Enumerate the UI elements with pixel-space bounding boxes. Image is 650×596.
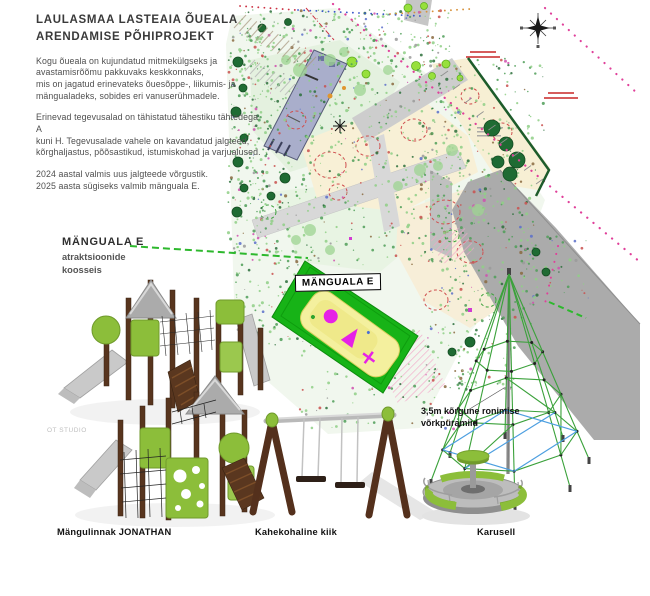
page-title: LAULASMAA LASTEAIA ÕUEALA ARENDAMISE PÕH… — [36, 12, 264, 47]
equipment-label-swing: Kahekohaline kiik — [255, 527, 337, 537]
watermark-text: OT STUDIO — [47, 427, 87, 434]
project-poster: LAULASMAA LASTEAIA ÕUEALA ARENDAMISE PÕH… — [0, 0, 650, 596]
compass-rose-icon — [520, 13, 556, 48]
pyramid-note: 3,5m kõrgune ronimise võrkpüramiid — [421, 406, 520, 429]
equipment-label-carousel: Karusell — [477, 527, 515, 537]
callout-title: MÄNGUALA E — [62, 236, 144, 248]
zones-paragraph: Erinevad tegevusalad on tähistatud tähes… — [36, 112, 264, 159]
timeline-paragraph: 2024 aastal valmis uus jalgteede võrgust… — [36, 169, 264, 192]
callout-subtitle: atraktsioonide koosseis — [62, 251, 144, 276]
area-label: MÄNGUALA E — [295, 273, 381, 292]
playhouse-render — [58, 280, 275, 527]
manguala-e-callout: MÄNGUALA E atraktsioonide koosseis — [62, 236, 144, 276]
intro-paragraph: Kogu õueala on kujundatud mitmekülgseks … — [36, 56, 264, 103]
equipment-label-playhouse: Mängulinnak JONATHAN — [57, 527, 171, 537]
header-block: LAULASMAA LASTEAIA ÕUEALA ARENDAMISE PÕH… — [36, 12, 264, 202]
